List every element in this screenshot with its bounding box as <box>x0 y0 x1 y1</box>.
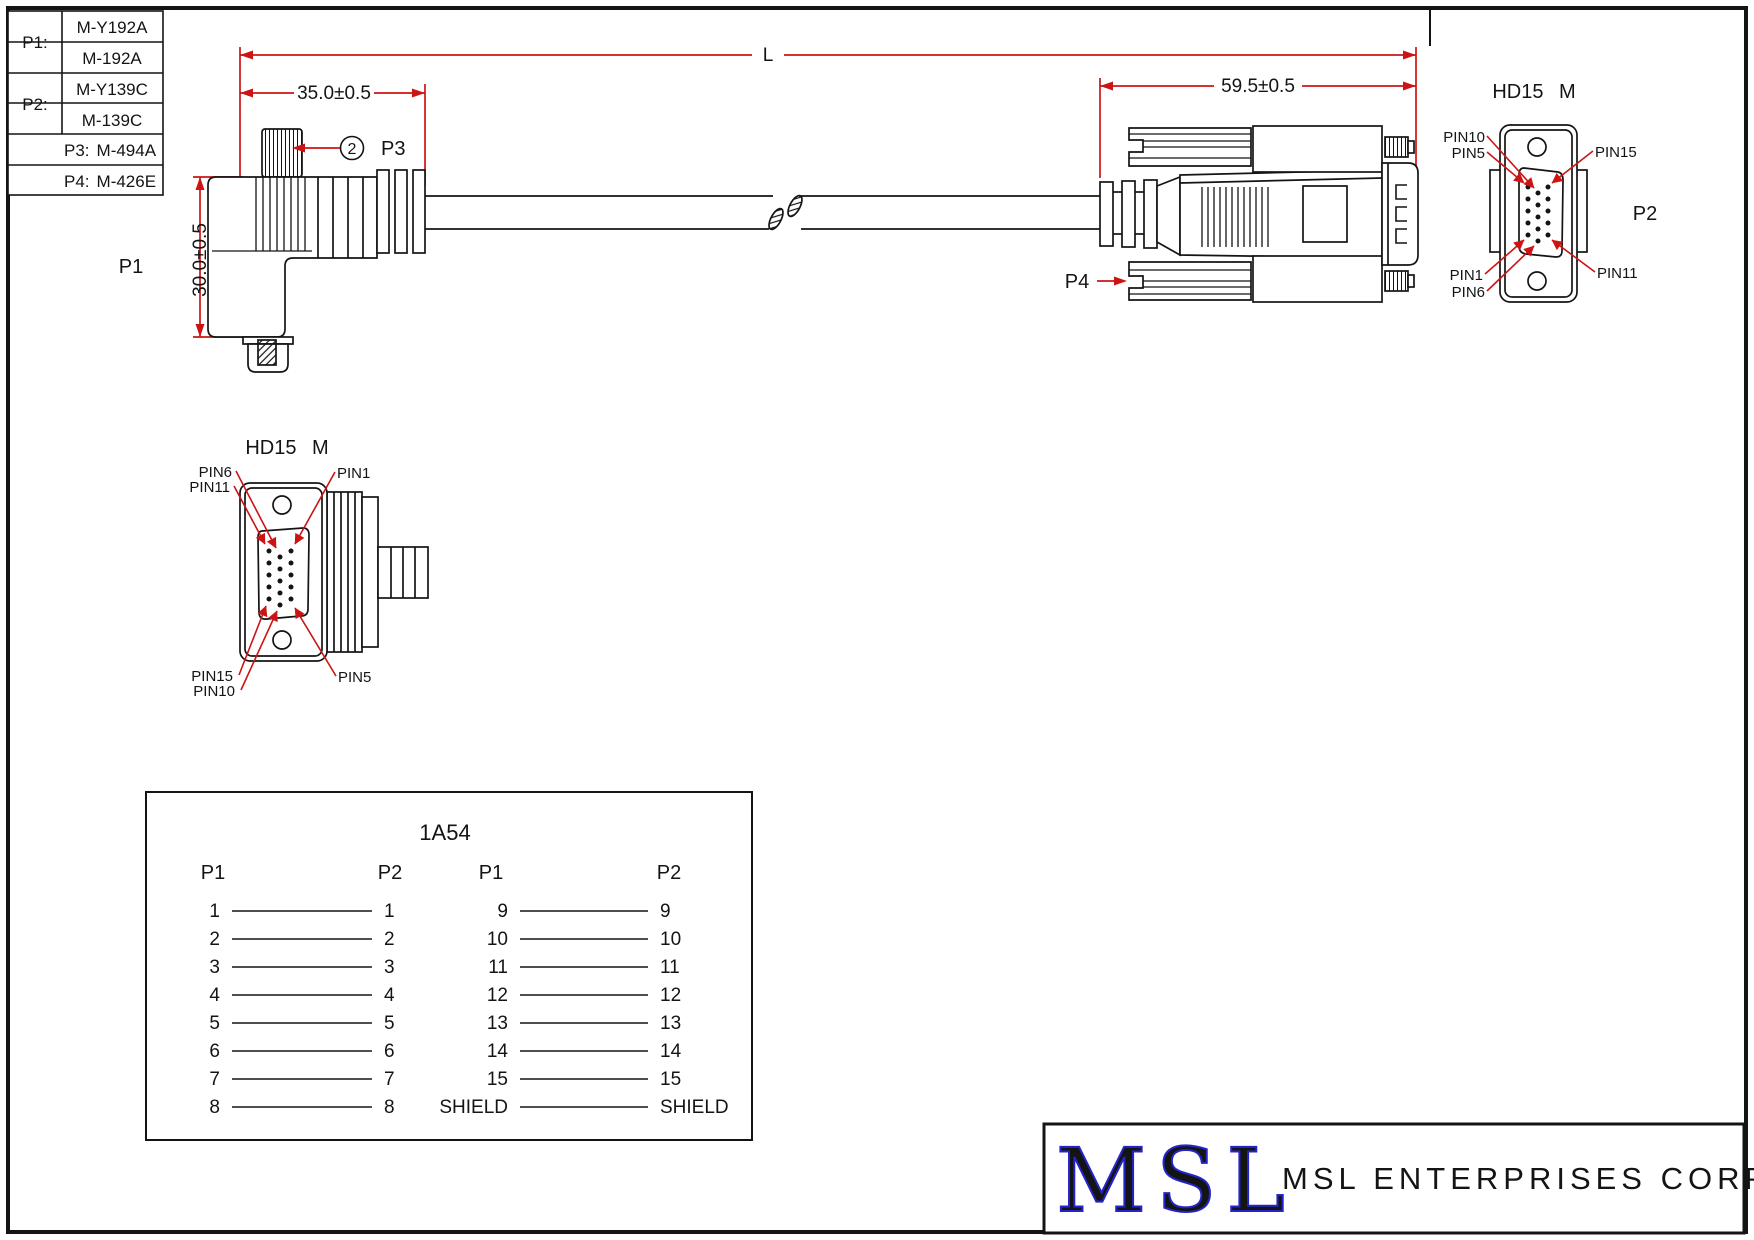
p2-connector-drawing <box>1100 126 1418 302</box>
p2-strain-relief <box>1100 182 1113 246</box>
svg-text:11: 11 <box>488 957 508 978</box>
wiring-header: P2 <box>657 862 681 884</box>
pin-label: PIN10 <box>193 683 235 700</box>
svg-text:SHIELD: SHIELD <box>439 1097 508 1118</box>
pin-label: PIN10 <box>1443 129 1485 146</box>
hd15-face-view-p1: HD15 M PIN6 PIN11 PIN1 PIN15 <box>189 437 428 700</box>
p3-qty: 2 <box>348 141 357 158</box>
pin-label: PIN5 <box>1452 145 1485 162</box>
p2-face-screw-hole-top <box>1528 138 1546 156</box>
part-p2-value-2: M-139C <box>82 111 142 130</box>
svg-text:9: 9 <box>660 901 671 922</box>
company-name: MSL ENTERPRISES CORP. <box>1282 1161 1754 1196</box>
part-row-p3: P3:M-494A <box>64 141 157 160</box>
p1-face-screw-hole-bottom <box>273 631 291 649</box>
cable-drawing <box>425 193 1100 231</box>
hd15-right-title: HD15 M <box>1492 81 1575 103</box>
svg-text:12: 12 <box>487 985 508 1006</box>
svg-text:3: 3 <box>384 957 395 978</box>
svg-text:2: 2 <box>209 929 220 950</box>
svg-text:7: 7 <box>384 1069 395 1090</box>
p1-dsub-opening <box>258 528 309 619</box>
p1-strain-relief <box>377 170 389 253</box>
p1-top-thumbscrew <box>262 129 302 177</box>
cable-break-symbol <box>766 206 786 231</box>
svg-text:6: 6 <box>209 1041 220 1062</box>
msl-logo: MSL <box>1056 1129 1295 1232</box>
svg-text:5: 5 <box>209 1013 220 1034</box>
part-p1-value-2: M-192A <box>82 49 142 68</box>
svg-text:10: 10 <box>487 929 508 950</box>
p3-designator: P3 <box>381 138 405 160</box>
title-block: MSL MSL ENTERPRISES CORP. <box>1044 1124 1754 1233</box>
wiring-diagram: 1A54 P1 P2 P1 P2 11 22 33 44 55 66 77 88… <box>146 792 752 1140</box>
p4-designator: P4 <box>1065 271 1089 293</box>
svg-text:8: 8 <box>209 1097 220 1118</box>
part-row-p4: P4:M-426E <box>64 172 156 191</box>
p1-face-screw-hole-top <box>273 496 291 514</box>
dim-p2-offset-label: 59.5±0.5 <box>1221 76 1295 97</box>
svg-text:5: 5 <box>384 1013 395 1034</box>
pin-label: PIN15 <box>1595 144 1637 161</box>
p2-bottom-thumbscrew <box>1385 271 1408 291</box>
p2-top-thumbscrew <box>1385 137 1408 157</box>
svg-text:1: 1 <box>209 901 220 922</box>
cable-assembly-drawing: P1: M-Y192A M-192A P2: M-Y139C M-139C P3… <box>0 0 1754 1240</box>
drawing-page: P1: M-Y192A M-192A P2: M-Y139C M-139C P3… <box>0 0 1754 1240</box>
svg-text:15: 15 <box>487 1069 508 1090</box>
p1-bottom-screw <box>258 340 276 365</box>
part-p2-value-1: M-Y139C <box>76 80 148 99</box>
wiring-header: P1 <box>201 862 225 884</box>
svg-text:14: 14 <box>660 1041 682 1062</box>
svg-text:9: 9 <box>497 901 508 922</box>
svg-text:1: 1 <box>384 901 395 922</box>
parts-table: P1: M-Y192A M-192A P2: M-Y139C M-139C P3… <box>8 11 163 195</box>
pin-label: PIN11 <box>1597 265 1638 282</box>
dim-length-label: L <box>763 45 774 66</box>
svg-text:SHIELD: SHIELD <box>660 1097 729 1118</box>
pin-label: PIN1 <box>1450 267 1483 284</box>
part-row-p2-label: P2: <box>22 95 48 114</box>
part-row-p1-label: P1: <box>22 33 48 52</box>
svg-text:4: 4 <box>384 985 395 1006</box>
svg-text:12: 12 <box>660 985 681 1006</box>
hd15-face-view-p2: HD15 M PIN10 PIN5 PIN15 PIN1 PIN6 PIN11 … <box>1443 81 1657 302</box>
p2-overmold-body <box>1180 170 1382 258</box>
svg-text:2: 2 <box>384 929 395 950</box>
pin-label: PIN11 <box>189 479 230 496</box>
svg-text:7: 7 <box>209 1069 220 1090</box>
pin-label: PIN5 <box>338 669 371 686</box>
svg-text:13: 13 <box>487 1013 508 1034</box>
wiring-header: P1 <box>479 862 503 884</box>
svg-text:4: 4 <box>209 985 220 1006</box>
p1-face-flange-rings <box>327 492 362 652</box>
svg-text:14: 14 <box>487 1041 509 1062</box>
svg-text:3: 3 <box>209 957 220 978</box>
pin-label: PIN6 <box>1452 284 1485 301</box>
dim-p1-offset-label: 35.0±0.5 <box>297 83 371 104</box>
wiring-title: 1A54 <box>419 820 470 845</box>
svg-text:10: 10 <box>660 929 681 950</box>
svg-text:8: 8 <box>384 1097 395 1118</box>
p1-designator: P1 <box>119 256 143 278</box>
p2-designator: P2 <box>1633 203 1657 225</box>
dimension-text: L 35.0±0.5 59.5±0.5 30.0±0.5 <box>190 45 1295 297</box>
svg-text:11: 11 <box>660 957 680 978</box>
svg-text:13: 13 <box>660 1013 681 1034</box>
svg-text:15: 15 <box>660 1069 681 1090</box>
p2-face-screw-hole-bottom <box>1528 272 1546 290</box>
part-p1-value-1: M-Y192A <box>77 18 149 37</box>
wiring-header: P2 <box>378 862 402 884</box>
svg-text:6: 6 <box>384 1041 395 1062</box>
pin-label: PIN1 <box>337 465 370 482</box>
hd15-left-title: HD15 M <box>245 437 328 459</box>
